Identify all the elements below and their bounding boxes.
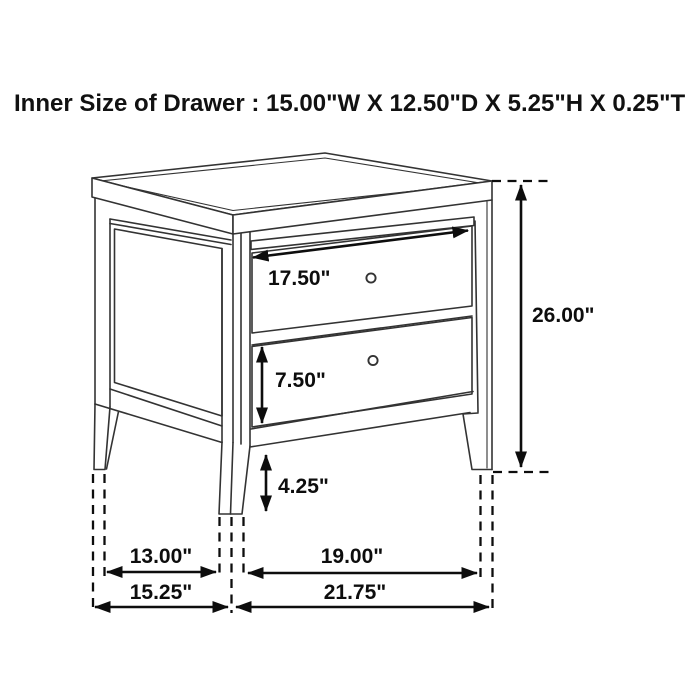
dimension-overall-height: 26.00" bbox=[521, 185, 595, 467]
dimension-front-leg-span: 19.00" bbox=[248, 545, 477, 573]
dimension-leg-height: 4.25" bbox=[266, 455, 329, 511]
front-right-post bbox=[475, 200, 492, 470]
front-corner-post bbox=[222, 233, 250, 447]
dimension-side-leg-span: 13.00" bbox=[107, 545, 216, 572]
dimension-label: 17.50" bbox=[268, 267, 331, 290]
diagram-page: Inner Size of Drawer : 15.00"W X 12.50"D… bbox=[0, 0, 700, 700]
dimension-label: 4.25" bbox=[278, 475, 329, 498]
dimension-label: 13.00" bbox=[130, 545, 193, 568]
back-left-leg bbox=[94, 404, 119, 470]
dimension-label: 21.75" bbox=[324, 581, 387, 604]
nightstand-drawing bbox=[92, 153, 492, 514]
dimension-label: 15.25" bbox=[130, 581, 193, 604]
dimension-label: 7.50" bbox=[275, 369, 326, 392]
diagram-canvas: 17.50" 26.00" 7.50" 4.25" 13.00" 19.00" … bbox=[0, 0, 700, 700]
side-panel bbox=[95, 198, 231, 443]
dimension-overall-width: 21.75" bbox=[236, 581, 489, 607]
dimension-label: 26.00" bbox=[532, 304, 595, 327]
front-right-leg bbox=[463, 413, 492, 470]
front-left-leg bbox=[219, 442, 250, 514]
dimension-overall-depth: 15.25" bbox=[95, 581, 228, 607]
drawer-front-face bbox=[250, 217, 474, 447]
dimension-label: 19.00" bbox=[321, 545, 384, 568]
